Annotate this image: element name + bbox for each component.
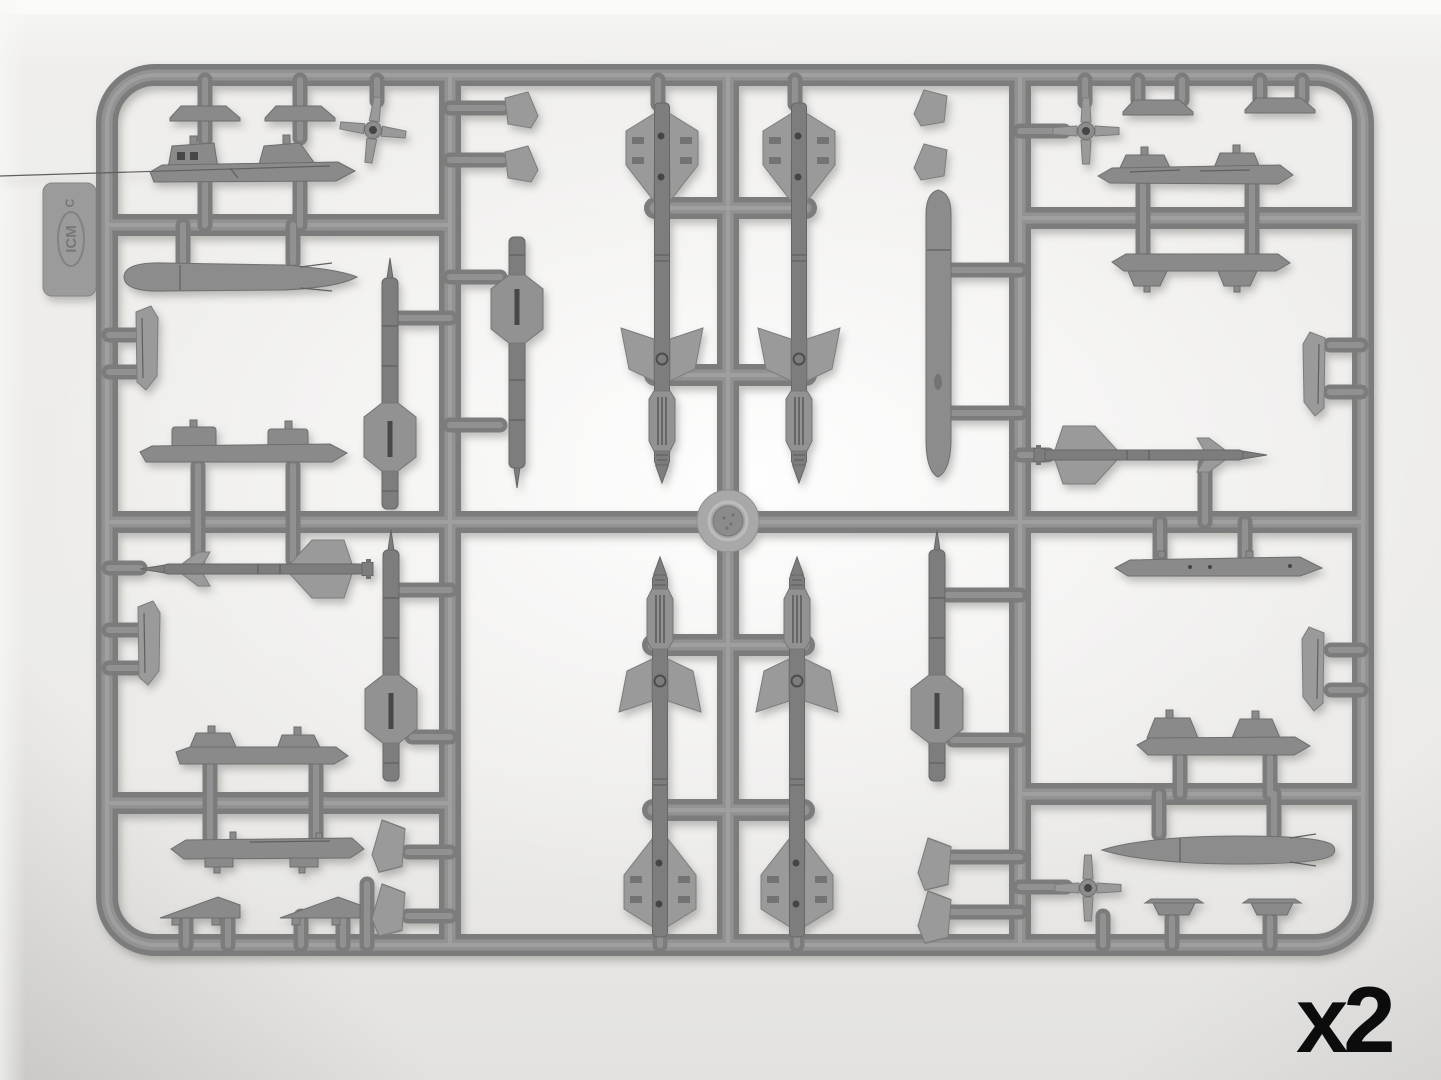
- small-wedge-fin: [136, 306, 158, 390]
- small-fin: [505, 146, 538, 182]
- missile-half: [756, 557, 838, 937]
- pylon-foot: [265, 106, 335, 121]
- small-fin: [918, 891, 951, 943]
- lightbox-photo: ICM C: [0, 0, 1441, 1080]
- small-wedge-fin: [1303, 332, 1325, 416]
- injection-point-disc: [697, 490, 759, 552]
- missile-half: [619, 557, 701, 937]
- pylon-foot: [1145, 899, 1203, 915]
- cruciform-fin-unit: [336, 93, 411, 168]
- cruciform-fin-unit: [1053, 98, 1119, 164]
- pylon-bottom-left: [176, 726, 348, 764]
- small-fin: [372, 884, 405, 936]
- small-fin: [918, 838, 951, 890]
- sprue-photo-svg: ICM C: [0, 0, 1441, 1080]
- small-fin: [372, 820, 405, 872]
- launch-rail-bottom-left: [171, 832, 364, 873]
- drop-tank-half-bottom-right: [1102, 834, 1335, 866]
- sprue-tab: ICM C: [43, 183, 96, 296]
- short-range-missile-half: [1034, 426, 1267, 484]
- small-wedge-fin: [1302, 627, 1324, 711]
- quantity-label: x2: [1296, 966, 1436, 1074]
- missile-half: [758, 103, 840, 483]
- small-fin: [914, 144, 947, 180]
- missile-half: [621, 103, 703, 483]
- flat-pylon-top-left: [140, 420, 347, 462]
- drop-tank-half-top-left: [124, 263, 357, 291]
- small-fin: [505, 92, 538, 128]
- launch-rail-top-right: [1098, 145, 1293, 184]
- pylon-foot: [1243, 899, 1301, 915]
- sprue-brand-embossed: ICM: [63, 225, 80, 253]
- cruciform-fin-unit: [1055, 855, 1121, 921]
- small-wedge-fin: [138, 601, 160, 685]
- drop-tank-half-vertical: [926, 190, 951, 477]
- sprue-letter-embossed: C: [63, 198, 77, 207]
- pylon-foot: [170, 106, 240, 121]
- missile-body-half: [364, 258, 416, 509]
- pylon-top-right-lower: [1112, 254, 1290, 292]
- flat-rail-bottom-right: [1115, 551, 1322, 576]
- double-pylon-bottom-right: [1137, 710, 1310, 755]
- short-range-missile-half: [140, 540, 373, 598]
- small-fin: [914, 90, 947, 126]
